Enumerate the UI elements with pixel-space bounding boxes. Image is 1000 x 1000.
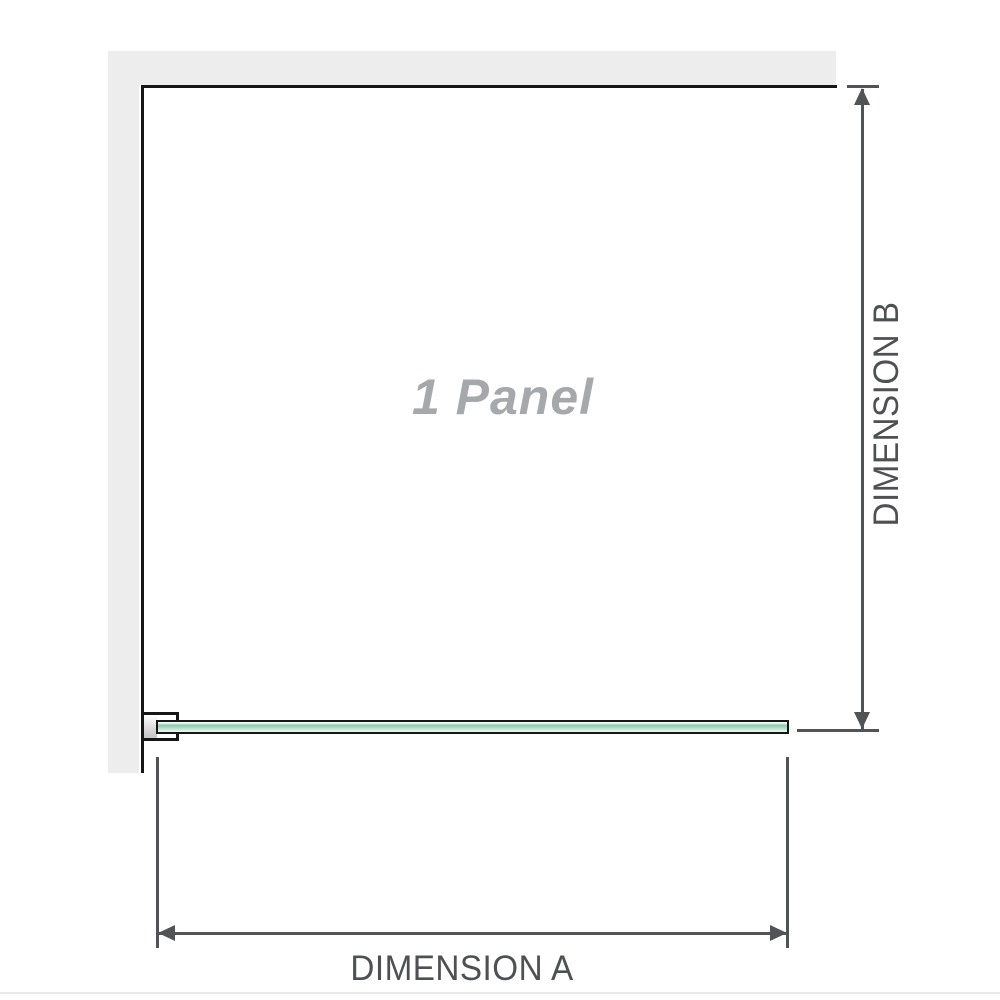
wall-inner-left-line	[141, 85, 144, 773]
shower-panel-diagram: 1 Panel DIMENSION B DIMENSION A	[0, 0, 1000, 1000]
dimension-b-label: DIMENSION B	[867, 301, 907, 526]
arrow-up-icon	[854, 88, 870, 105]
arrow-left-icon	[158, 925, 175, 941]
footer-divider	[0, 992, 1000, 994]
arrow-right-icon	[770, 925, 787, 941]
arrow-down-icon	[854, 712, 870, 729]
dimension-a-line	[159, 932, 786, 935]
wall-top-bar	[108, 51, 836, 85]
dimension-a-label: DIMENSION A	[350, 949, 573, 989]
dimension-b-line	[861, 89, 864, 729]
dimension-a-right-extension-line	[786, 757, 789, 948]
glass-panel	[156, 720, 789, 734]
panel-count-label: 1 Panel	[412, 368, 594, 426]
dimension-a-left-extension-line	[156, 757, 159, 948]
wall-left-bar	[108, 51, 139, 773]
dimension-b-bottom-tick	[797, 729, 879, 732]
wall-inner-top-line	[141, 85, 837, 88]
